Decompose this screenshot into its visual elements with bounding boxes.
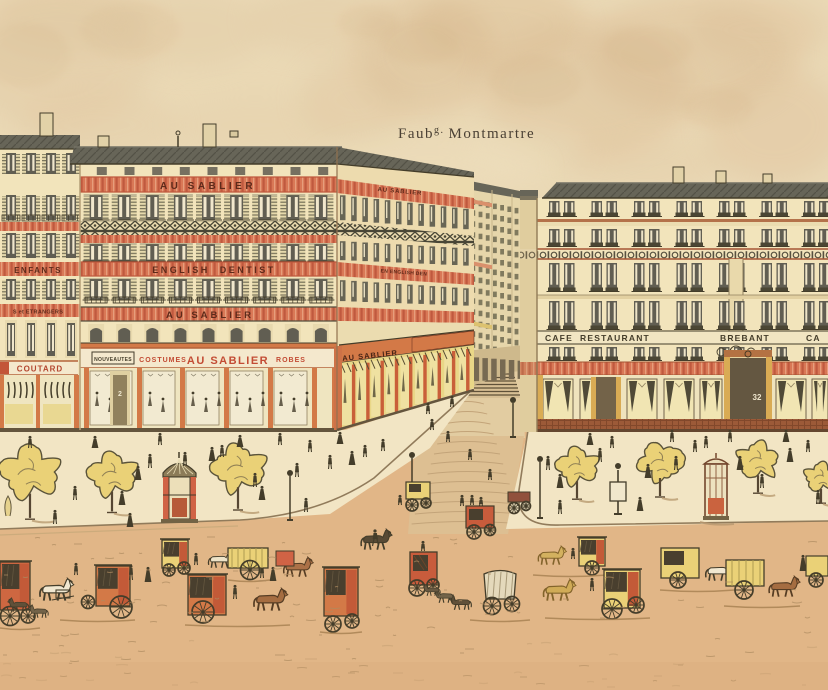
svg-text:Faubg.Montmartre: Faubg.Montmartre (398, 125, 535, 142)
